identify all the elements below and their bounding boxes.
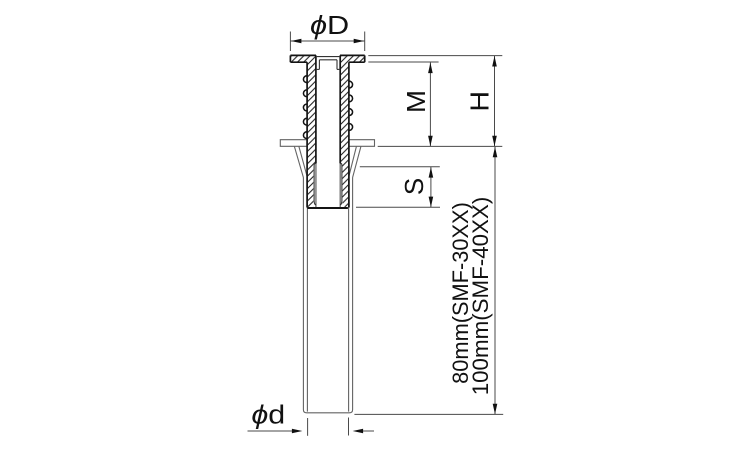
svg-text:ϕd: ϕd — [251, 400, 285, 429]
svg-text:M: M — [402, 90, 431, 113]
svg-text:100mm(SMF-40XX): 100mm(SMF-40XX) — [468, 197, 493, 396]
svg-text:H: H — [465, 91, 494, 112]
svg-text:ϕD: ϕD — [310, 11, 349, 40]
svg-text:S: S — [399, 178, 429, 195]
